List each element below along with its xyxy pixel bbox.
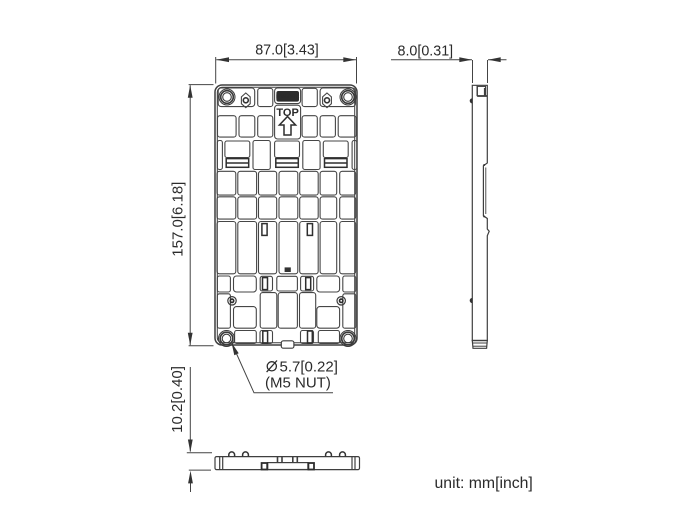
svg-text:87.0[3.43]: 87.0[3.43] [255,43,319,59]
svg-text:MW-DRC: MW-DRC [276,94,299,100]
svg-text:(M5 NUT): (M5 NUT) [265,375,331,392]
svg-text:157.0[6.18]: 157.0[6.18] [169,182,186,257]
svg-text:8.0[0.31]: 8.0[0.31] [398,43,454,59]
svg-text:unit: mm[inch]: unit: mm[inch] [435,475,533,492]
svg-text:5.7[0.22]: 5.7[0.22] [280,359,338,376]
svg-text:10.2[0.40]: 10.2[0.40] [169,366,186,433]
